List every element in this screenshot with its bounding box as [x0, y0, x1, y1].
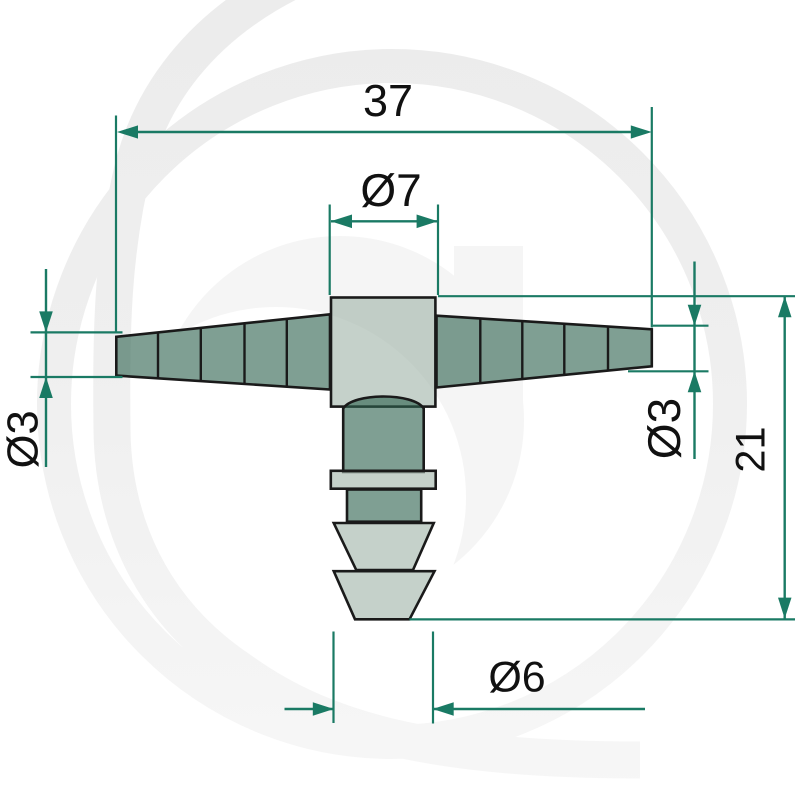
svg-text:Ø3: Ø3 [638, 398, 690, 459]
svg-text:Ø7: Ø7 [360, 164, 421, 216]
svg-text:Ø6: Ø6 [488, 654, 545, 702]
svg-text:21: 21 [726, 426, 773, 472]
svg-text:37: 37 [363, 75, 413, 126]
svg-text:Ø3: Ø3 [0, 410, 47, 468]
